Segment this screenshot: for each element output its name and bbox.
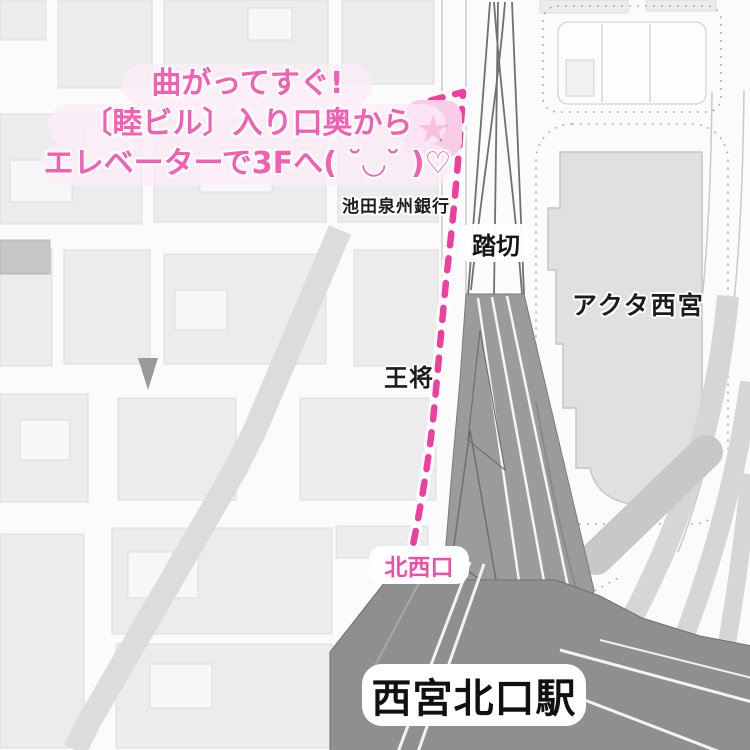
- annotation-line-2: 〔睦ビル〕入り口奥から: [40, 104, 455, 144]
- poi-label-station: 西宮北口駅: [362, 664, 586, 726]
- poi-label-acta: アクタ西宮: [572, 286, 705, 322]
- station-text: 西宮北口駅: [372, 666, 577, 724]
- poi-label-ohsho: 王将: [384, 358, 434, 393]
- route-instruction-annotation: 曲がってすぐ! 〔睦ビル〕入り口奥から エレベーターで3Fへ( ˘◡˘ )♡: [40, 58, 455, 186]
- poi-label-northwest-exit: 北西口: [369, 546, 469, 584]
- poi-label-bank: 池田泉州銀行: [342, 192, 450, 217]
- poi-label-crossing: 踏切: [459, 224, 533, 262]
- annotation-line-1: 曲がってすぐ!: [40, 64, 455, 104]
- annotation-line-3: エレベーターで3Fへ( ˘◡˘ )♡: [40, 144, 455, 184]
- northwest-exit-text: 北西口: [385, 548, 454, 582]
- map-screenshot: ★ 池田泉州銀行 踏切 アクタ西宮 王将 北西口 西宮北口駅 曲がってすぐ! 〔…: [0, 0, 750, 750]
- crossing-text: 踏切: [472, 226, 520, 261]
